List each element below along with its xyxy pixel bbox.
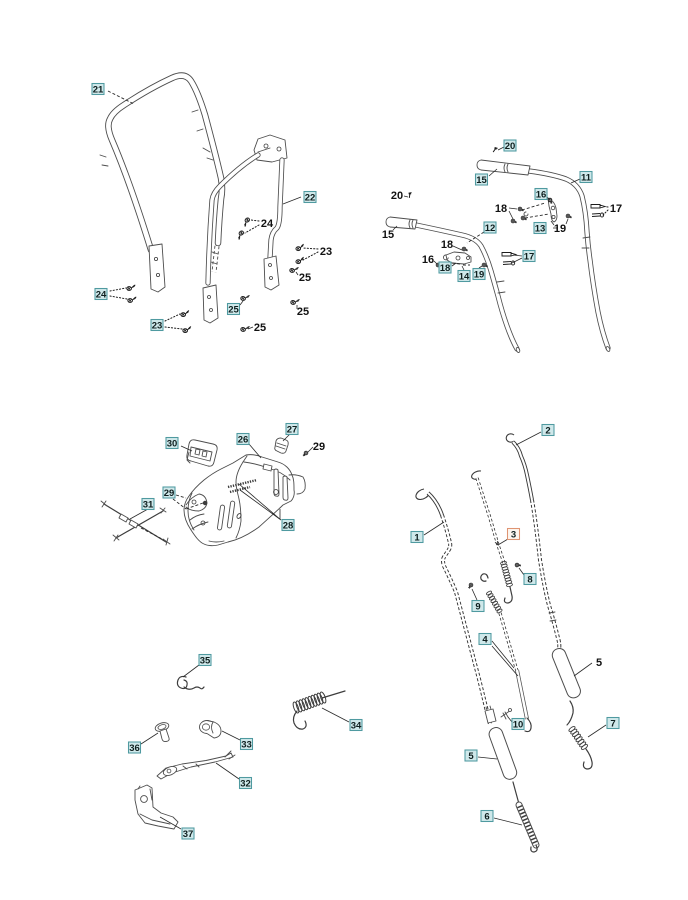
svg-text:26: 26 — [238, 435, 249, 446]
svg-text:25: 25 — [299, 272, 311, 284]
svg-text:11: 11 — [581, 173, 592, 184]
svg-text:15: 15 — [382, 229, 394, 241]
svg-text:20: 20 — [505, 141, 516, 152]
svg-text:16: 16 — [536, 190, 547, 201]
svg-text:27: 27 — [287, 425, 298, 436]
svg-text:12: 12 — [485, 223, 496, 234]
svg-text:19: 19 — [474, 270, 485, 281]
svg-text:9: 9 — [475, 602, 480, 613]
svg-text:3: 3 — [511, 530, 516, 541]
svg-text:23: 23 — [152, 321, 163, 332]
svg-text:33: 33 — [241, 740, 252, 751]
svg-text:31: 31 — [143, 500, 154, 511]
svg-text:18: 18 — [440, 263, 451, 274]
svg-text:7: 7 — [610, 719, 615, 730]
svg-text:35: 35 — [200, 656, 211, 667]
svg-text:6: 6 — [484, 812, 489, 823]
svg-text:13: 13 — [535, 224, 546, 235]
svg-text:25: 25 — [228, 305, 239, 316]
svg-text:25: 25 — [297, 306, 309, 318]
svg-text:1: 1 — [414, 533, 420, 544]
svg-text:29: 29 — [164, 488, 175, 499]
svg-text:18: 18 — [441, 239, 453, 251]
svg-text:16: 16 — [422, 254, 434, 266]
svg-text:30: 30 — [167, 439, 178, 450]
svg-text:22: 22 — [305, 193, 316, 204]
svg-text:14: 14 — [459, 272, 470, 283]
svg-text:20: 20 — [391, 190, 403, 202]
svg-text:17: 17 — [524, 252, 535, 263]
svg-text:17: 17 — [610, 203, 622, 215]
svg-text:19: 19 — [554, 223, 566, 235]
svg-text:24: 24 — [96, 290, 107, 301]
svg-text:8: 8 — [527, 575, 532, 586]
svg-text:15: 15 — [476, 175, 487, 186]
svg-text:23: 23 — [320, 246, 332, 258]
svg-text:29: 29 — [313, 441, 325, 453]
svg-text:34: 34 — [351, 721, 362, 732]
svg-text:36: 36 — [129, 743, 140, 754]
svg-text:10: 10 — [513, 720, 524, 731]
svg-text:32: 32 — [240, 779, 251, 790]
svg-text:25: 25 — [254, 322, 266, 334]
svg-text:37: 37 — [183, 829, 194, 840]
svg-text:18: 18 — [495, 203, 507, 215]
svg-text:5: 5 — [596, 657, 602, 669]
svg-text:2: 2 — [545, 426, 550, 437]
svg-text:28: 28 — [283, 521, 294, 532]
svg-text:21: 21 — [93, 85, 104, 96]
svg-text:5: 5 — [468, 751, 474, 762]
svg-text:4: 4 — [482, 635, 488, 646]
svg-text:24: 24 — [261, 218, 274, 230]
